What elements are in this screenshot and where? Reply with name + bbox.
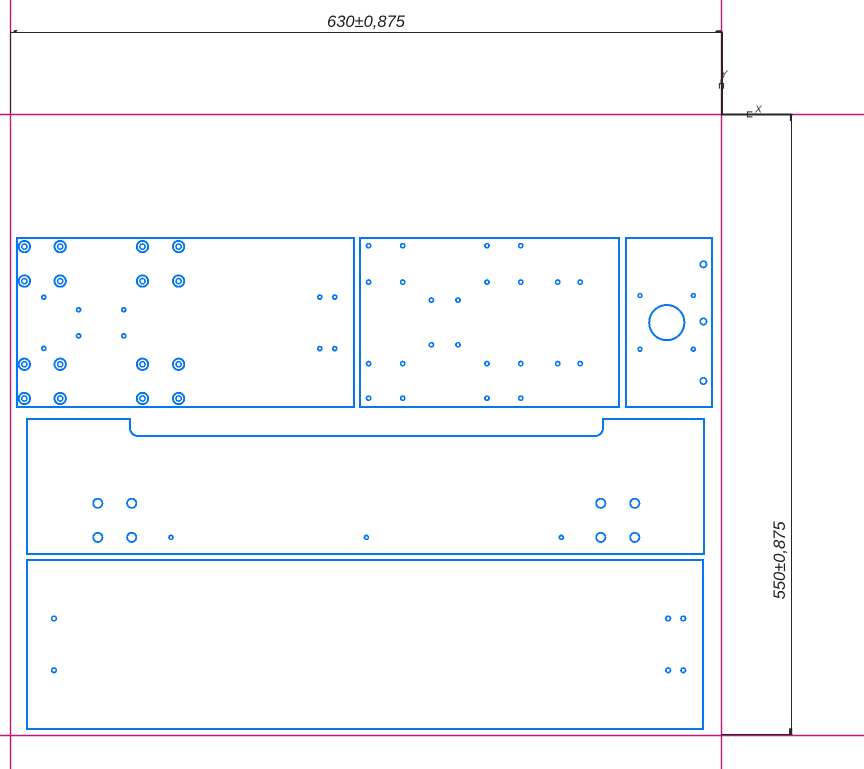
svg-text:630±0,875: 630±0,875 xyxy=(327,13,406,31)
svg-text:550±0,875: 550±0,875 xyxy=(771,521,789,600)
svg-text:Y: Y xyxy=(721,69,729,80)
